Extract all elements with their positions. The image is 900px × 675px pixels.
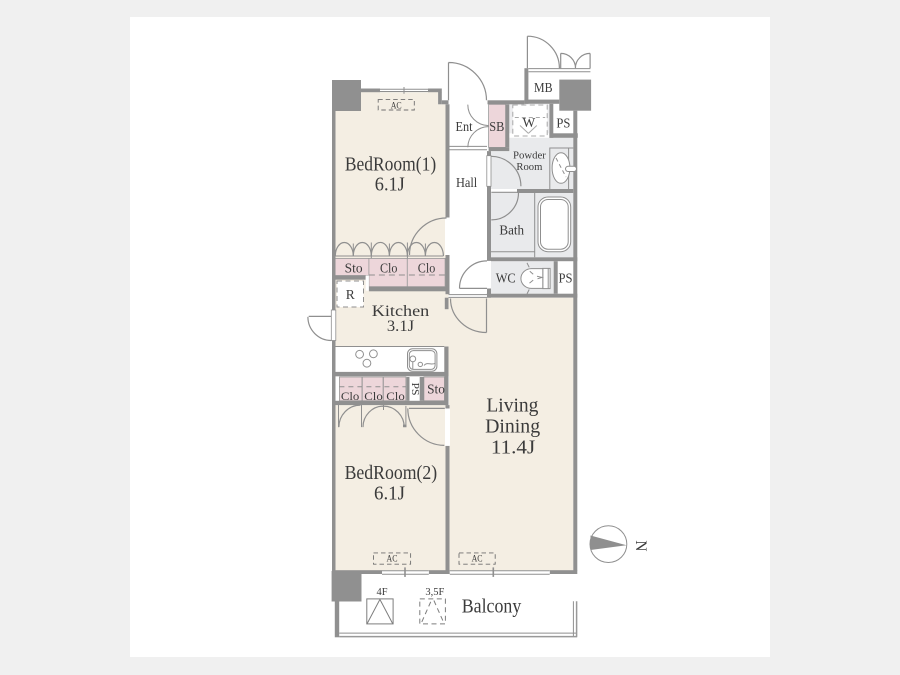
svg-text:N: N (632, 540, 649, 551)
svg-text:AC: AC (387, 554, 398, 564)
svg-text:PS: PS (409, 383, 421, 396)
svg-text:Ent: Ent (456, 119, 473, 134)
svg-text:4F: 4F (377, 587, 388, 598)
svg-text:11.4J: 11.4J (491, 437, 535, 459)
svg-text:6.1J: 6.1J (375, 174, 405, 196)
svg-text:WC: WC (496, 271, 516, 286)
svg-text:3,5F: 3,5F (425, 587, 444, 598)
svg-text:BedRoom(2): BedRoom(2) (345, 462, 438, 484)
svg-text:Sto: Sto (345, 261, 363, 276)
svg-text:R: R (346, 287, 355, 302)
svg-text:Clo: Clo (341, 389, 360, 403)
svg-text:PS: PS (556, 116, 570, 131)
svg-text:Living: Living (486, 395, 538, 417)
svg-text:Dining: Dining (485, 415, 540, 437)
svg-text:AC: AC (391, 100, 402, 110)
svg-text:MB: MB (534, 80, 553, 95)
svg-text:Clo: Clo (380, 261, 398, 276)
svg-text:BedRoom(1): BedRoom(1) (345, 153, 436, 175)
svg-text:Sto: Sto (427, 381, 445, 396)
svg-text:PS: PS (559, 271, 573, 286)
svg-text:Clo: Clo (364, 389, 383, 403)
svg-text:W: W (523, 115, 536, 130)
svg-text:Clo: Clo (386, 389, 405, 403)
svg-text:SB: SB (489, 119, 504, 134)
svg-text:Bath: Bath (499, 222, 524, 237)
svg-text:Hall: Hall (456, 175, 478, 190)
svg-text:Balcony: Balcony (462, 596, 522, 618)
svg-text:Room: Room (516, 161, 542, 173)
svg-text:6.1J: 6.1J (374, 482, 405, 504)
svg-text:AC: AC (472, 554, 483, 564)
svg-text:Powder: Powder (513, 149, 546, 161)
svg-text:3.1J: 3.1J (387, 318, 414, 335)
svg-text:Clo: Clo (418, 261, 436, 276)
